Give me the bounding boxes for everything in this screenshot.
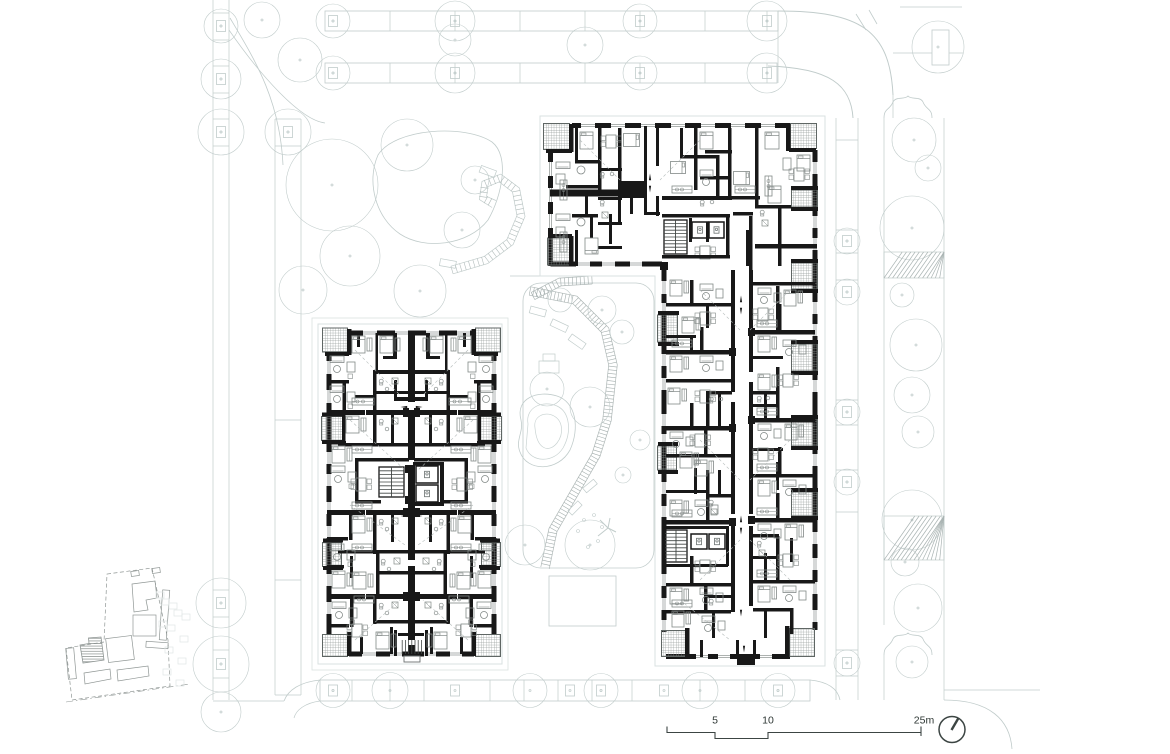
svg-text:10: 10 — [762, 715, 774, 727]
svg-text:5: 5 — [712, 715, 718, 727]
svg-text:25m: 25m — [914, 715, 935, 727]
